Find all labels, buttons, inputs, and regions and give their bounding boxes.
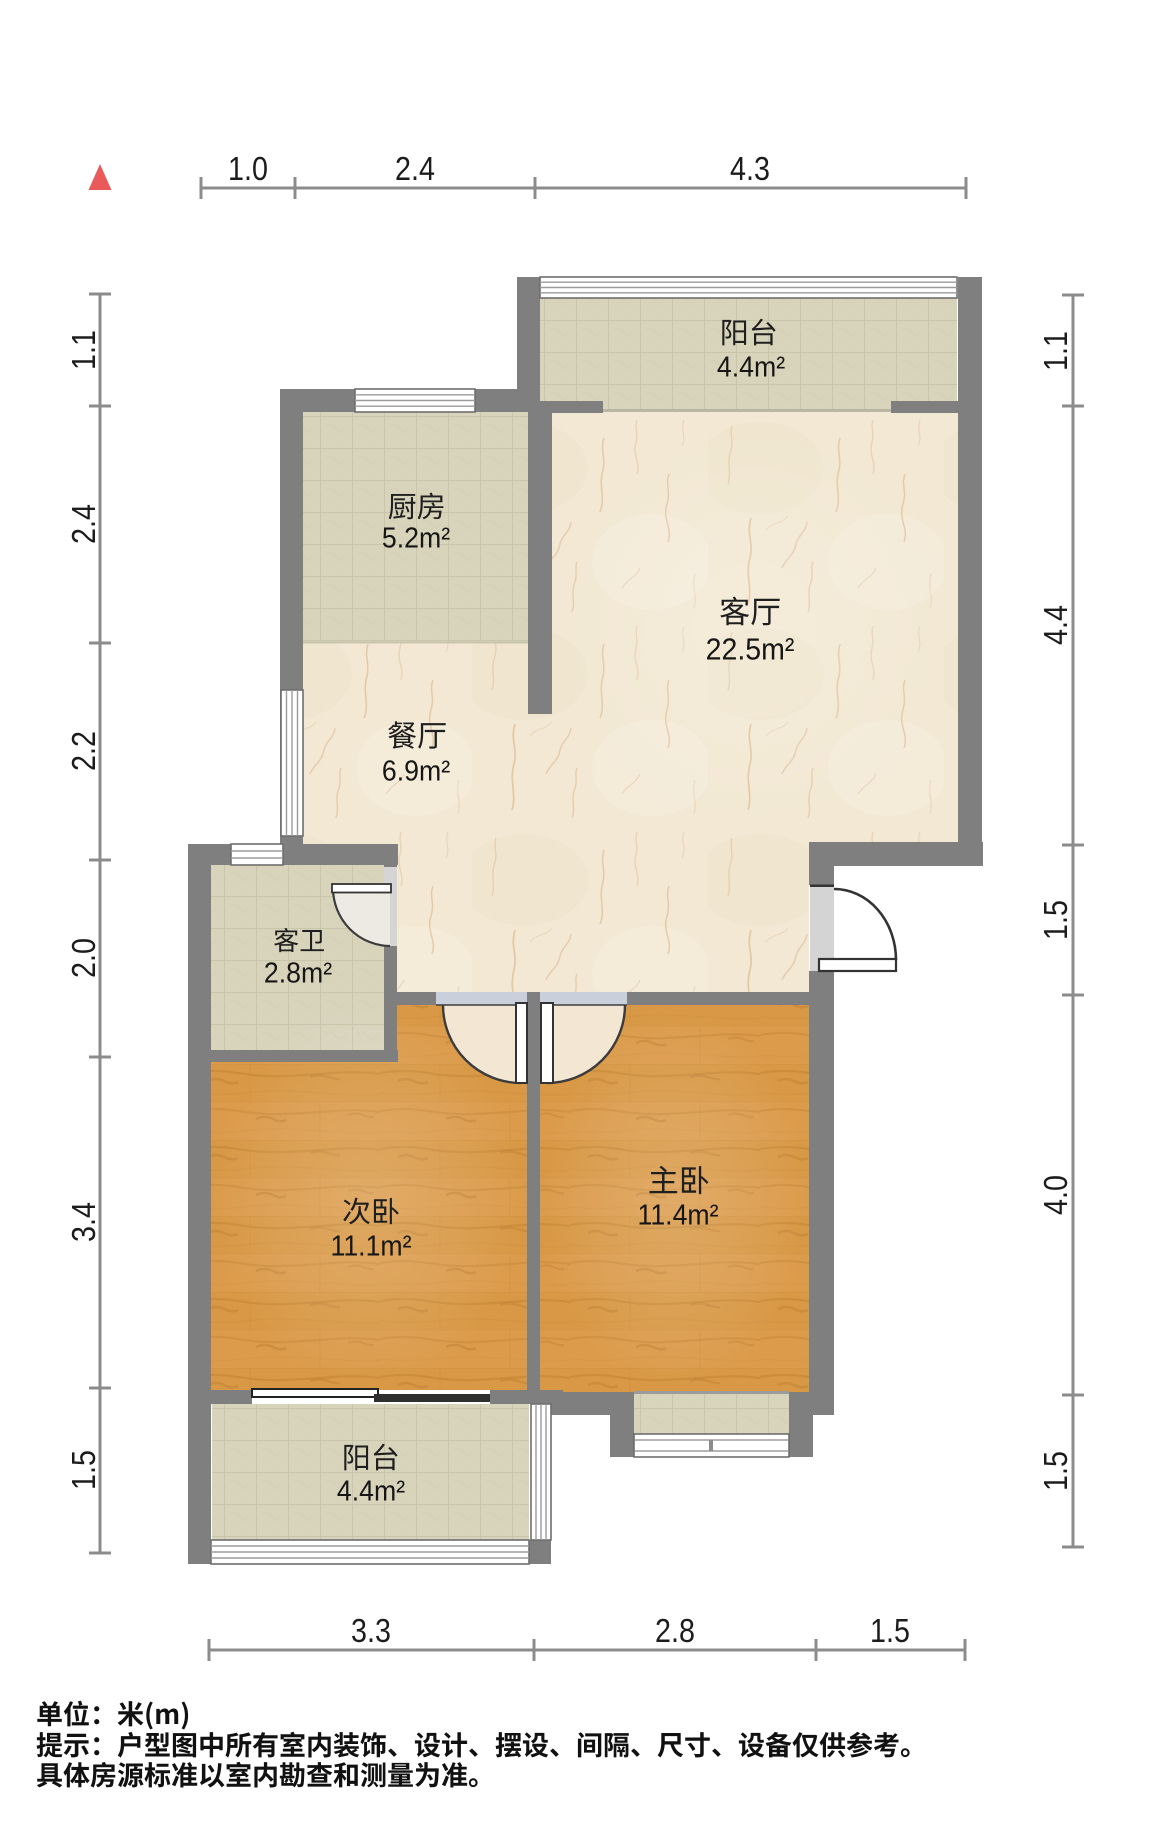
svg-text:2.0: 2.0 <box>65 938 102 978</box>
svg-text:1.5: 1.5 <box>65 1450 102 1490</box>
svg-text:6.9m²: 6.9m² <box>382 755 450 787</box>
svg-text:2.8m²: 2.8m² <box>264 957 332 989</box>
svg-text:2.8: 2.8 <box>655 1612 695 1649</box>
svg-text:2.4: 2.4 <box>395 150 435 187</box>
svg-text:1.1: 1.1 <box>1037 331 1074 371</box>
svg-text:4.4: 4.4 <box>1037 605 1074 645</box>
svg-text:4.3: 4.3 <box>730 150 770 187</box>
svg-text:3.4: 3.4 <box>65 1202 102 1242</box>
svg-text:1.5: 1.5 <box>870 1612 910 1649</box>
svg-text:1.1: 1.1 <box>65 330 102 370</box>
svg-text:11.1m²: 11.1m² <box>330 1230 411 1262</box>
svg-text:3.3: 3.3 <box>351 1612 391 1649</box>
svg-text:11.4m²: 11.4m² <box>637 1199 718 1231</box>
svg-text:4.4m²: 4.4m² <box>717 351 785 383</box>
svg-text:1.5: 1.5 <box>1037 1451 1074 1491</box>
svg-text:5.2m²: 5.2m² <box>382 522 450 554</box>
svg-text:4.4m²: 4.4m² <box>337 1475 405 1507</box>
svg-text:1.0: 1.0 <box>228 150 268 187</box>
svg-text:2.4: 2.4 <box>65 504 102 544</box>
svg-text:22.5m²: 22.5m² <box>706 632 795 666</box>
svg-text:1.5: 1.5 <box>1037 900 1074 940</box>
svg-text:2.2: 2.2 <box>65 731 102 771</box>
svg-text:4.0: 4.0 <box>1037 1175 1074 1215</box>
